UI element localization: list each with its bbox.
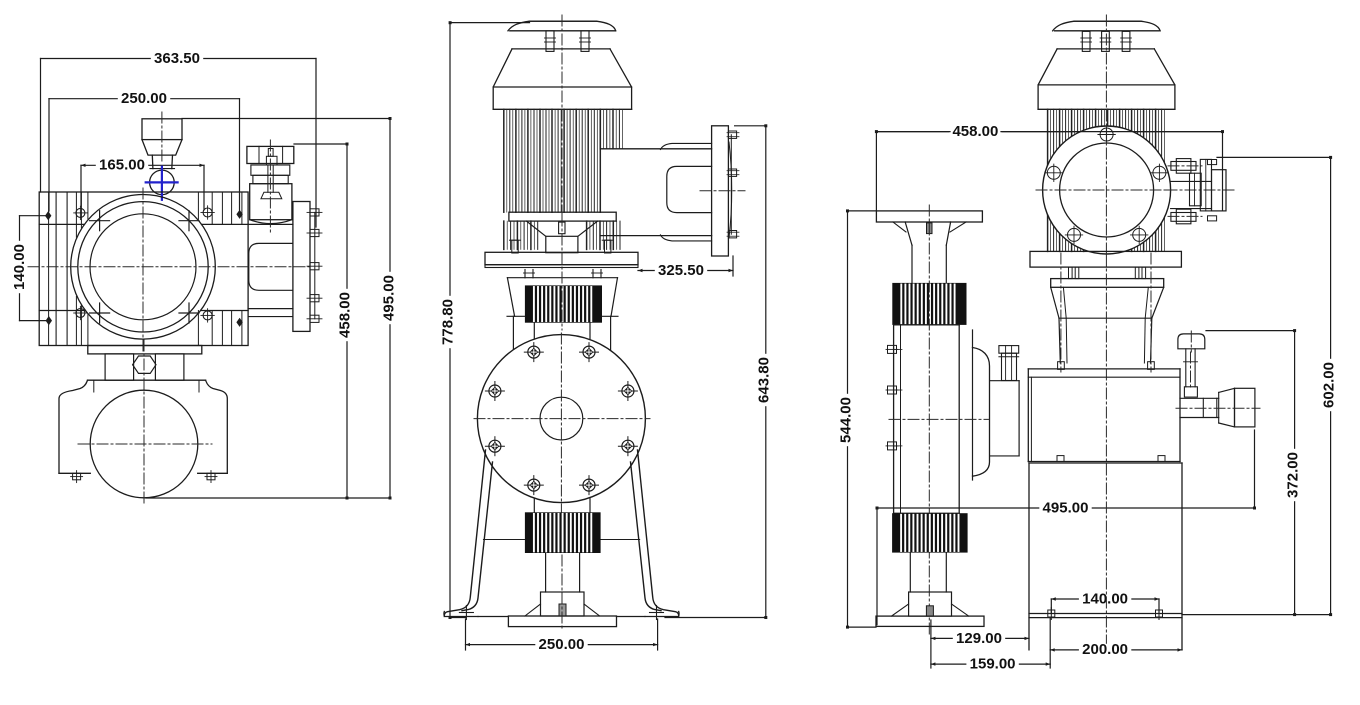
svg-text:363.50: 363.50 [154, 50, 200, 67]
svg-text:140.00: 140.00 [11, 244, 28, 290]
svg-text:159.00: 159.00 [970, 656, 1016, 673]
svg-text:602.00: 602.00 [1320, 362, 1337, 408]
svg-text:250.00: 250.00 [121, 90, 167, 107]
svg-text:165.00: 165.00 [99, 157, 145, 174]
svg-text:458.00: 458.00 [336, 292, 353, 338]
svg-text:458.00: 458.00 [952, 123, 998, 140]
svg-text:544.00: 544.00 [837, 397, 854, 443]
svg-text:372.00: 372.00 [1284, 452, 1301, 498]
svg-text:250.00: 250.00 [539, 636, 585, 653]
svg-text:140.00: 140.00 [1082, 590, 1128, 607]
svg-text:129.00: 129.00 [956, 630, 1002, 647]
svg-text:778.80: 778.80 [439, 299, 456, 345]
svg-text:325.50: 325.50 [658, 262, 704, 279]
svg-text:495.00: 495.00 [1043, 499, 1089, 516]
svg-text:495.00: 495.00 [380, 275, 397, 321]
svg-text:643.80: 643.80 [755, 357, 772, 403]
svg-text:200.00: 200.00 [1082, 641, 1128, 658]
